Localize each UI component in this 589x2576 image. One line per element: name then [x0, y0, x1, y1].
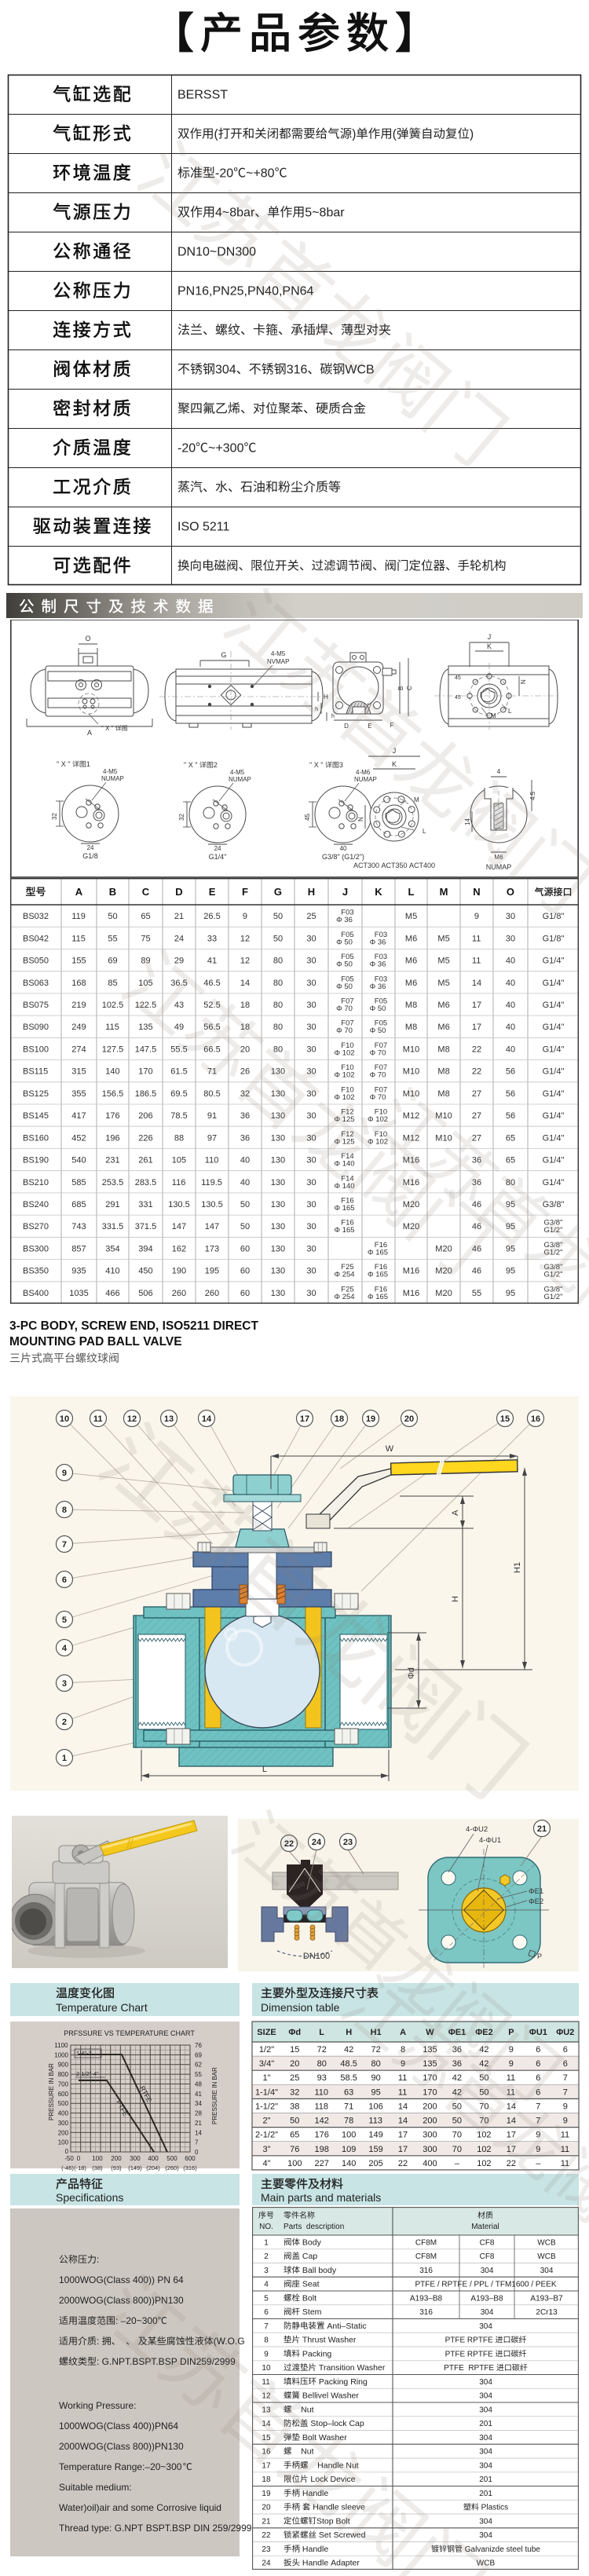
svg-text:23: 23 [343, 1838, 353, 1847]
svg-text:M10: M10 [435, 1133, 452, 1143]
svg-text:30: 30 [306, 1289, 316, 1298]
svg-text:5: 5 [264, 2294, 269, 2303]
svg-text:130.5: 130.5 [201, 1200, 223, 1209]
svg-text:260: 260 [205, 1289, 219, 1298]
svg-text:600: 600 [58, 2091, 69, 2098]
svg-text:249: 249 [71, 1023, 86, 1032]
svg-text:93: 93 [317, 2073, 327, 2083]
svg-text:4: 4 [497, 768, 501, 775]
svg-text:46: 46 [472, 1244, 481, 1253]
svg-text:300: 300 [423, 2145, 437, 2154]
svg-text:ΦU2: ΦU2 [556, 2028, 574, 2037]
svg-text:Φ 165: Φ 165 [335, 1226, 355, 1235]
svg-text:Φ 102: Φ 102 [335, 1071, 355, 1080]
svg-text:DN100: DN100 [303, 1952, 330, 1961]
svg-text:40: 40 [506, 1045, 515, 1054]
svg-text:H1: H1 [371, 2028, 382, 2037]
svg-text:M6: M6 [437, 1001, 449, 1010]
svg-text:D: D [344, 723, 349, 730]
svg-text:30: 30 [306, 1023, 316, 1032]
svg-text:Anti–Static: Anti–Static [325, 2322, 367, 2331]
svg-text:A193–B8: A193–B8 [470, 2294, 503, 2303]
svg-text:61.5: 61.5 [170, 1067, 187, 1077]
svg-text:NVMAP: NVMAP [267, 658, 289, 665]
svg-text:7: 7 [563, 2088, 568, 2097]
svg-text::: : [97, 2336, 102, 2347]
svg-text:46: 46 [472, 1222, 481, 1231]
svg-text:80: 80 [273, 957, 283, 966]
svg-text:304: 304 [479, 2378, 492, 2387]
svg-text:135: 135 [423, 2059, 437, 2069]
svg-text:PRESSURE IN BAR: PRESSURE IN BAR [211, 2067, 218, 2124]
svg-text:3: 3 [62, 1679, 67, 1689]
svg-text:316: 316 [287, 364, 308, 377]
svg-text:H: H [308, 886, 315, 898]
svg-text:Φ 36: Φ 36 [336, 916, 353, 924]
svg-text:14: 14 [195, 2129, 202, 2136]
svg-text:16: 16 [262, 2448, 271, 2457]
svg-text:" X ": " X " [309, 761, 325, 769]
svg-text:Galvanizde steel tube: Galvanizde steel tube [463, 2545, 540, 2554]
svg-text:1/4"-2: 1/4"-2 [76, 2050, 92, 2057]
svg-text:42: 42 [344, 2045, 353, 2055]
svg-text:45: 45 [455, 675, 461, 681]
svg-text:195: 195 [205, 1267, 219, 1276]
svg-text:9: 9 [536, 2145, 540, 2154]
svg-text:M16: M16 [403, 1178, 419, 1187]
svg-text:46: 46 [472, 1200, 481, 1209]
svg-text:60: 60 [240, 1267, 250, 1276]
svg-text:G1/4": G1/4" [543, 957, 565, 966]
svg-text:12: 12 [262, 2392, 271, 2401]
svg-text:331.5: 331.5 [102, 1222, 124, 1231]
svg-text:30: 30 [306, 1222, 316, 1231]
svg-text:Stop–lock Cap: Stop–lock Cap [309, 2419, 364, 2428]
svg-text:304: 304 [479, 2434, 492, 2442]
svg-text:H: H [451, 1596, 460, 1602]
svg-text:450: 450 [138, 1267, 152, 1276]
svg-text:M6: M6 [405, 979, 417, 988]
svg-text:147.5: 147.5 [135, 1045, 157, 1054]
svg-text:176: 176 [105, 1111, 119, 1121]
svg-text:935: 935 [71, 1267, 86, 1276]
svg-text:" X ": " X " [57, 760, 72, 768]
svg-text:2: 2 [264, 2252, 269, 2261]
svg-text:17: 17 [472, 1023, 481, 1032]
svg-text:115: 115 [105, 1023, 119, 1032]
svg-text:L: L [408, 886, 415, 898]
svg-text:40: 40 [340, 845, 347, 852]
svg-text:700: 700 [58, 2081, 69, 2088]
svg-text:Suitable medium:: Suitable medium: [59, 2482, 132, 2493]
svg-text:23: 23 [262, 2545, 271, 2554]
svg-text:17: 17 [398, 2145, 408, 2154]
svg-text:11: 11 [472, 934, 481, 943]
svg-text:Dimension table: Dimension table [261, 2001, 340, 2014]
svg-text:12: 12 [127, 1414, 137, 1424]
svg-text:(204): (204) [146, 2164, 160, 2172]
svg-text:4: 4 [62, 1644, 68, 1653]
svg-text:4-M6: 4-M6 [356, 769, 371, 776]
svg-text:14: 14 [398, 2102, 408, 2112]
svg-text:Body: Body [300, 2238, 322, 2247]
svg-text:G1/4": G1/4" [543, 1023, 565, 1032]
svg-text:14: 14 [507, 2102, 516, 2112]
svg-text:G1/4": G1/4" [209, 853, 227, 861]
svg-text:147: 147 [172, 1222, 186, 1231]
svg-text:7: 7 [62, 1540, 67, 1550]
svg-text:12: 12 [240, 957, 250, 966]
svg-text:11: 11 [561, 2159, 569, 2168]
svg-text:M16: M16 [403, 1289, 419, 1298]
svg-text:105: 105 [172, 1156, 186, 1165]
svg-text:50: 50 [108, 912, 117, 921]
svg-text:(316): (316) [183, 2164, 197, 2172]
svg-text:Φ 125: Φ 125 [335, 1137, 355, 1146]
svg-text:70: 70 [452, 2131, 462, 2140]
svg-text:540: 540 [71, 1156, 86, 1165]
svg-text:Φ 50: Φ 50 [336, 938, 353, 946]
svg-text:0: 0 [77, 2155, 81, 2162]
svg-text:69.5: 69.5 [170, 1089, 187, 1099]
svg-text:G1/8": G1/8" [543, 912, 565, 921]
svg-text:Specifications: Specifications [56, 2191, 123, 2204]
svg-text:304: 304 [215, 364, 236, 377]
svg-text:0: 0 [65, 2148, 69, 2155]
svg-text:50: 50 [452, 2117, 462, 2126]
svg-text:304: 304 [540, 2267, 554, 2275]
svg-text:BS160: BS160 [23, 1133, 49, 1143]
svg-text:Φ 254: Φ 254 [335, 1271, 355, 1279]
svg-text:3: 3 [264, 2267, 269, 2275]
svg-text:6: 6 [536, 2045, 540, 2055]
svg-text:6: 6 [62, 1575, 67, 1585]
svg-text:41: 41 [195, 2091, 202, 2098]
svg-text:30: 30 [306, 1244, 316, 1253]
svg-text:6: 6 [536, 2073, 540, 2083]
svg-text:168: 168 [71, 979, 86, 988]
svg-text:Transition Washer: Transition Washer [316, 2363, 386, 2373]
svg-text:500: 500 [166, 2155, 177, 2162]
svg-text:N: N [357, 817, 364, 821]
svg-text:205: 205 [368, 2159, 382, 2168]
svg-text:Φd: Φd [288, 2028, 301, 2037]
svg-text:9: 9 [563, 2117, 568, 2126]
svg-text:30: 30 [506, 934, 515, 943]
svg-text:130: 130 [271, 1222, 285, 1231]
svg-text:80: 80 [273, 1001, 283, 1010]
svg-text:O: O [507, 886, 514, 898]
svg-text:11: 11 [93, 1414, 103, 1424]
svg-text:50: 50 [240, 1200, 250, 1209]
svg-text:Φ 125: Φ 125 [335, 1115, 355, 1124]
svg-text:70: 70 [479, 2117, 488, 2126]
svg-text:4-ΦU2: 4-ΦU2 [466, 1825, 488, 1834]
svg-text:ISO 5211: ISO 5211 [177, 521, 230, 534]
svg-text:65: 65 [506, 1133, 515, 1143]
svg-text:C: C [142, 886, 150, 898]
svg-text:190: 190 [172, 1267, 186, 1276]
svg-text:95: 95 [506, 1222, 515, 1231]
svg-text:G1/4": G1/4" [543, 1178, 565, 1187]
svg-text:110: 110 [205, 1156, 219, 1165]
svg-text:130.5: 130.5 [168, 1200, 190, 1209]
svg-text:10: 10 [60, 1414, 69, 1424]
svg-text:PTFE RPTFE: PTFE RPTFE [445, 2350, 496, 2358]
svg-text:H: H [346, 2028, 352, 2037]
svg-text:122.5: 122.5 [135, 1001, 157, 1010]
svg-text:304: 304 [479, 2448, 492, 2457]
svg-text:M: M [414, 796, 419, 803]
svg-text:142: 142 [315, 2117, 329, 2126]
svg-text:(: ( [393, 128, 397, 141]
svg-text:–: – [536, 2159, 541, 2168]
svg-text:~+80: ~+80 [246, 167, 275, 181]
svg-text:80: 80 [273, 1045, 283, 1054]
svg-text:354: 354 [105, 1244, 119, 1253]
svg-text:500: 500 [58, 2100, 69, 2107]
svg-text:40: 40 [506, 957, 515, 966]
svg-text:4.5: 4.5 [529, 791, 536, 800]
svg-text:J: J [393, 747, 397, 755]
svg-text:10: 10 [262, 2364, 271, 2373]
svg-text:~+300: ~+300 [208, 442, 243, 456]
svg-text:18: 18 [335, 1414, 344, 1424]
svg-text:95: 95 [506, 1244, 515, 1253]
svg-text:452: 452 [71, 1133, 86, 1143]
svg-text:NUMAP: NUMAP [101, 775, 124, 782]
svg-text:857: 857 [71, 1244, 86, 1253]
svg-text:34: 34 [195, 2100, 202, 2107]
svg-text:BS090: BS090 [23, 1023, 49, 1032]
svg-text:30: 30 [306, 934, 316, 943]
svg-text:400: 400 [423, 2159, 437, 2168]
svg-text:394: 394 [138, 1244, 152, 1253]
svg-text:BS042: BS042 [23, 934, 49, 943]
svg-text:1: 1 [62, 1754, 67, 1763]
svg-text:A193–B8: A193–B8 [410, 2294, 443, 2303]
svg-text:316: 316 [419, 2308, 433, 2317]
svg-text:4-M5: 4-M5 [103, 768, 118, 775]
svg-text:M8: M8 [437, 1067, 449, 1077]
svg-text:30: 30 [306, 979, 316, 988]
svg-text:30: 30 [306, 1200, 316, 1209]
svg-text:15: 15 [290, 2045, 299, 2055]
svg-text:M8: M8 [437, 1045, 449, 1054]
svg-text:Φ 36: Φ 36 [370, 938, 386, 946]
svg-text:304: 304 [479, 2461, 492, 2470]
svg-text:M6: M6 [405, 934, 417, 943]
svg-text:56.5: 56.5 [203, 1023, 220, 1032]
svg-text:200: 200 [423, 2117, 437, 2126]
svg-text:G1/4": G1/4" [543, 1045, 565, 1054]
svg-text:G1/4": G1/4" [543, 1089, 565, 1099]
svg-text:Nut: Nut [292, 2405, 314, 2414]
svg-text:G1/4": G1/4" [543, 979, 565, 988]
svg-text:J: J [342, 886, 348, 898]
svg-text:4": 4" [263, 2159, 271, 2168]
svg-text:0: 0 [195, 2149, 199, 2156]
svg-text:130: 130 [271, 1267, 285, 1276]
svg-text:2: 2 [62, 1718, 67, 1727]
svg-text:11: 11 [398, 2088, 407, 2097]
svg-text:Set Screwed: Set Screwed [316, 2530, 366, 2540]
svg-text:102: 102 [477, 2145, 491, 2154]
svg-text:M6: M6 [494, 854, 503, 861]
svg-text:3-PC BODY, SCREW END, ISO5211: 3-PC BODY, SCREW END, ISO5211 DIRECT [9, 1319, 258, 1333]
svg-text:" X ": " X " [101, 725, 115, 732]
svg-text:14: 14 [507, 2117, 516, 2126]
svg-text:45: 45 [455, 695, 461, 701]
svg-text:Φ 102: Φ 102 [335, 1048, 355, 1057]
svg-text:BS115: BS115 [23, 1067, 48, 1077]
svg-text:72: 72 [371, 2045, 381, 2055]
svg-text:K: K [375, 886, 382, 898]
svg-text:Φ 70: Φ 70 [370, 1093, 386, 1102]
svg-text:2000WOG(Class 800))PN130: 2000WOG(Class 800))PN130 [59, 2295, 184, 2306]
svg-text:1": 1" [263, 2073, 271, 2083]
svg-text:E: E [368, 723, 371, 730]
svg-text:58.5: 58.5 [340, 2073, 357, 2083]
svg-text:Φ 70: Φ 70 [336, 1004, 353, 1013]
svg-text:102.5: 102.5 [102, 1001, 124, 1010]
svg-text:200: 200 [58, 2129, 69, 2136]
svg-text:304: 304 [481, 2308, 494, 2317]
svg-text:76: 76 [290, 2145, 299, 2154]
svg-text:A: A [87, 729, 92, 737]
svg-text:M6: M6 [437, 1023, 449, 1032]
svg-text:9: 9 [509, 2059, 514, 2069]
svg-text:11: 11 [561, 2131, 569, 2140]
svg-text:N: N [520, 679, 527, 684]
svg-text:600: 600 [185, 2155, 196, 2162]
svg-text:WCB: WCB [345, 364, 374, 377]
svg-text:30: 30 [306, 957, 316, 966]
svg-text:Φ 254: Φ 254 [335, 1293, 355, 1301]
svg-text:3/4": 3/4" [259, 2059, 274, 2069]
svg-text:40: 40 [240, 1178, 250, 1187]
svg-text:3: 3 [339, 761, 343, 769]
svg-text:Φ 36: Φ 36 [370, 982, 386, 991]
svg-text:G1/4": G1/4" [543, 1001, 565, 1010]
svg-text:80: 80 [273, 1023, 283, 1032]
svg-text:27: 27 [472, 1089, 481, 1099]
svg-text:32: 32 [240, 1089, 250, 1099]
svg-text:291: 291 [105, 1200, 119, 1209]
svg-text:Temperature Range:–20~300: Temperature Range:–20~300 [59, 2461, 182, 2472]
svg-text:WCB: WCB [477, 2560, 496, 2568]
svg-text:130: 130 [271, 1289, 285, 1298]
svg-text:200: 200 [111, 2155, 122, 2162]
svg-text:6: 6 [563, 2059, 568, 2069]
svg-text:1100: 1100 [54, 2042, 68, 2049]
svg-text:Water)oil)air and some Corrosi: Water)oil)air and some Corrosive liquid [59, 2502, 221, 2513]
svg-text:(149): (149) [128, 2164, 142, 2172]
svg-text:17: 17 [507, 2145, 516, 2154]
svg-text:Φ 102: Φ 102 [335, 1093, 355, 1102]
svg-text:Thread type: G.NPT BSPT.BSP DI: Thread type: G.NPT BSPT.BSP DIN 259/2999 [59, 2523, 252, 2534]
svg-text:M20: M20 [435, 1244, 452, 1253]
svg-text:4-M5: 4-M5 [230, 769, 245, 776]
svg-text:7: 7 [264, 2322, 269, 2331]
svg-text:38: 38 [290, 2102, 299, 2112]
svg-text:130: 130 [271, 1178, 285, 1187]
svg-text:206: 206 [138, 1111, 152, 1121]
svg-text:219: 219 [71, 1001, 86, 1010]
svg-text:11: 11 [507, 2088, 515, 2097]
svg-text:Φ 50: Φ 50 [370, 1026, 386, 1035]
svg-text:170: 170 [138, 1067, 152, 1077]
svg-text:h: h [315, 707, 318, 712]
svg-text:90: 90 [371, 2073, 381, 2083]
svg-text:140: 140 [342, 2159, 356, 2168]
svg-text:20: 20 [404, 1414, 414, 1424]
svg-text:46.5: 46.5 [203, 979, 220, 988]
svg-text:4~8bar: 4~8bar [215, 207, 255, 220]
svg-text:G1/8": G1/8" [543, 934, 565, 943]
svg-text:H: H [324, 693, 328, 701]
svg-text:170: 170 [423, 2073, 437, 2083]
svg-text:K: K [487, 642, 492, 650]
svg-text:BS075: BS075 [23, 1001, 49, 1010]
svg-text:18: 18 [240, 1023, 250, 1032]
svg-text:900: 900 [58, 2062, 69, 2069]
svg-text:36: 36 [240, 1111, 250, 1121]
svg-text:32: 32 [51, 813, 58, 820]
svg-text:110: 110 [315, 2088, 329, 2097]
svg-text:2000WOG(Class 800))PN130: 2000WOG(Class 800))PN130 [59, 2441, 184, 2452]
svg-text:14: 14 [262, 2420, 271, 2428]
svg-text:M8: M8 [405, 1001, 417, 1010]
svg-text:Lock Device: Lock Device [309, 2475, 356, 2484]
svg-text:410: 410 [105, 1267, 119, 1276]
svg-text:Handle sleeve: Handle sleeve [310, 2503, 365, 2512]
svg-text:11: 11 [398, 2073, 407, 2083]
svg-text:22: 22 [472, 1067, 481, 1077]
svg-text:L: L [319, 2028, 324, 2037]
svg-text:116: 116 [172, 1178, 186, 1187]
svg-text:100: 100 [342, 2131, 356, 2140]
svg-text:ACT300 ACT350 ACT400: ACT300 ACT350 ACT400 [353, 862, 435, 869]
svg-text:17: 17 [398, 2131, 408, 2140]
svg-text:80: 80 [371, 2059, 381, 2069]
svg-text:19: 19 [262, 2490, 271, 2498]
svg-text:30: 30 [306, 1133, 316, 1143]
svg-text:8: 8 [62, 1506, 67, 1515]
svg-text:-50: -50 [64, 2155, 74, 2162]
svg-text:Parts description: Parts description [284, 2223, 344, 2231]
svg-text:1000WOG(Class 400)) PN 64: 1000WOG(Class 400)) PN 64 [59, 2274, 184, 2285]
svg-text:6: 6 [536, 2088, 540, 2097]
svg-text:9: 9 [509, 2045, 514, 2055]
svg-text:66.5: 66.5 [203, 1045, 220, 1054]
svg-text:49: 49 [174, 1023, 184, 1032]
svg-text:ΦE2: ΦE2 [529, 1897, 543, 1906]
svg-text:21: 21 [537, 1824, 547, 1834]
svg-text:80: 80 [273, 979, 283, 988]
svg-text:Packing: Packing [300, 2349, 331, 2358]
svg-text:50: 50 [479, 2088, 488, 2097]
svg-text:NUMAP: NUMAP [486, 863, 512, 871]
svg-text:(38): (38) [92, 2164, 103, 2172]
svg-text:22: 22 [398, 2159, 408, 2168]
svg-text:97: 97 [207, 1133, 217, 1143]
svg-text:ΦE1: ΦE1 [448, 2028, 466, 2037]
svg-text:Material: Material [471, 2223, 499, 2231]
svg-text:40: 40 [506, 1023, 515, 1032]
svg-text:30: 30 [306, 1111, 316, 1121]
svg-text:9: 9 [401, 2059, 405, 2069]
